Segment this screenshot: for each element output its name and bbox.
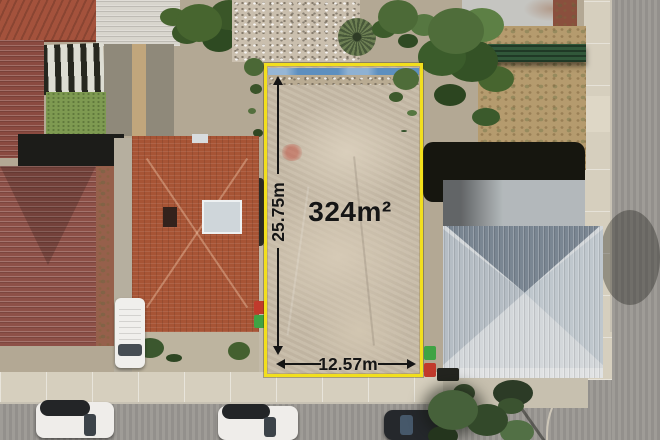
dirt-track-mark-2 [353,156,375,345]
brick-paving-strip [96,166,114,346]
tree-right-large [428,8,484,54]
white-ute-left [36,402,114,438]
ute-right-windshield [264,417,276,437]
depth-line-lower [277,248,279,346]
silver-roof-eave [443,368,603,378]
bin-red-right [424,363,436,377]
white-van-driveway [115,298,145,368]
bin-green-right [424,346,436,360]
depth-arrowhead-bottom [273,346,283,355]
front-yard-bush-2 [228,342,250,360]
green-pergola [488,44,586,62]
bin-black-cluster [437,368,459,381]
tree-bottom-right [428,390,478,430]
frontage-line-right [378,363,408,365]
lot-area-label: 324m² [298,197,402,227]
maroon-roof-hip-shade [0,166,96,346]
frontage-arrowhead-left [276,359,285,369]
lot-depth-label: 25.75m [267,172,289,252]
roof-tarp-white [96,0,180,46]
house-silver-roof [443,226,603,378]
chimney [163,207,177,227]
silver-house-bush-1 [493,380,533,406]
ute-left-tray-cover [40,400,90,416]
skylight-small [192,134,208,143]
greenery-left-of-lot [244,58,264,76]
tree-top-center [176,4,222,42]
aerial-photo: 25.75m 324m² 12.57m [0,0,660,440]
terracotta-house-front-yard [132,332,259,374]
roof-strip-right [443,180,585,228]
skylight-large [202,200,242,234]
house-terracotta-roof [132,136,259,332]
tree-shadow-on-road [600,210,660,305]
red-soil-stain [281,144,303,161]
van-roof-seams [119,304,141,340]
lot-frontage-label: 12.57m [309,353,387,375]
roof-striped-solar [41,43,105,95]
house-maroon-roof [0,166,96,346]
suv-glass [400,415,413,435]
van-windshield [118,344,142,356]
roof-shed-grey [104,44,174,136]
foliage-overhang-corner [393,68,419,90]
white-ute-right [218,406,298,440]
frontage-arrowhead-right [407,359,416,369]
ute-left-windshield [84,414,96,436]
depth-line-upper [277,84,279,174]
ute-right-tray-cover [222,404,270,419]
tree-top-right-of-lot [378,0,418,34]
palm-plant [338,18,376,56]
